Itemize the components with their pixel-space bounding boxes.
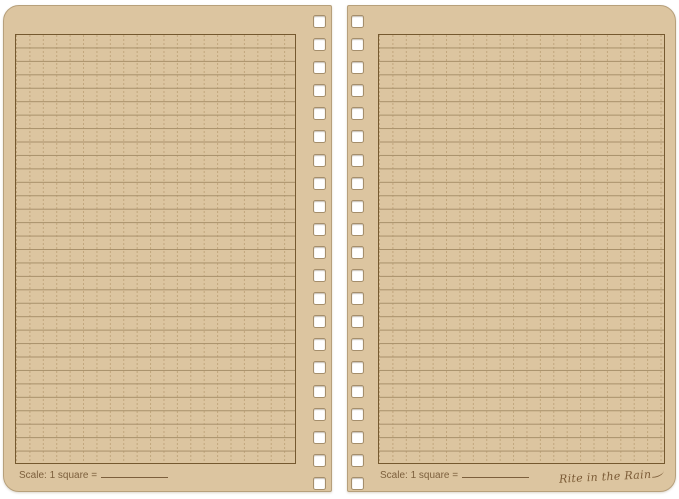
punch-hole bbox=[351, 454, 364, 467]
punch-hole bbox=[351, 177, 364, 190]
brand-signature: Rite in the Rain bbox=[558, 467, 664, 485]
punch-hole bbox=[351, 246, 364, 259]
punch-hole bbox=[351, 15, 364, 28]
scale-row-right: Scale: 1 square = bbox=[380, 468, 529, 482]
punch-hole bbox=[313, 385, 326, 398]
punch-hole bbox=[313, 154, 326, 167]
punch-hole bbox=[351, 361, 364, 374]
punch-hole bbox=[313, 361, 326, 374]
punch-hole bbox=[313, 315, 326, 328]
punch-hole bbox=[313, 223, 326, 236]
punch-hole bbox=[313, 431, 326, 444]
punch-hole bbox=[313, 200, 326, 213]
punch-hole bbox=[313, 269, 326, 282]
punch-hole bbox=[351, 38, 364, 51]
scale-label-left: Scale: 1 square = bbox=[19, 470, 97, 481]
punch-hole bbox=[351, 477, 364, 490]
spiral-holes-right bbox=[351, 15, 364, 490]
punch-hole bbox=[313, 408, 326, 421]
punch-hole bbox=[313, 107, 326, 120]
punch-hole bbox=[313, 454, 326, 467]
ruled-grid-right bbox=[378, 34, 665, 464]
punch-hole bbox=[313, 84, 326, 97]
scale-row-left: Scale: 1 square = bbox=[19, 468, 168, 482]
punch-hole bbox=[351, 107, 364, 120]
spiral-holes-left bbox=[313, 15, 326, 490]
scale-label-right: Scale: 1 square = bbox=[380, 470, 458, 481]
punch-hole bbox=[351, 431, 364, 444]
scale-fill-in-line-left bbox=[101, 468, 168, 478]
punch-hole bbox=[313, 38, 326, 51]
punch-hole bbox=[313, 61, 326, 74]
signature-swash bbox=[652, 470, 664, 478]
punch-hole bbox=[351, 269, 364, 282]
punch-hole bbox=[313, 177, 326, 190]
scale-fill-in-line-right bbox=[462, 468, 529, 478]
punch-hole bbox=[313, 292, 326, 305]
punch-hole bbox=[351, 223, 364, 236]
punch-hole bbox=[351, 408, 364, 421]
punch-hole bbox=[351, 84, 364, 97]
brand-signature-text: Rite in the Rain bbox=[558, 468, 651, 486]
punch-hole bbox=[313, 477, 326, 490]
punch-hole bbox=[351, 130, 364, 143]
punch-hole bbox=[313, 15, 326, 28]
punch-hole bbox=[351, 385, 364, 398]
punch-hole bbox=[351, 154, 364, 167]
punch-hole bbox=[351, 61, 364, 74]
punch-hole bbox=[351, 292, 364, 305]
punch-hole bbox=[313, 338, 326, 351]
ruled-grid-left bbox=[15, 34, 296, 464]
notebook-page-right: Scale: 1 square = Rite in the Rain bbox=[347, 5, 676, 492]
notebook-spread: Scale: 1 square = Scale: 1 square = Rite… bbox=[0, 0, 679, 499]
punch-hole bbox=[351, 338, 364, 351]
notebook-page-left: Scale: 1 square = bbox=[3, 5, 332, 492]
punch-hole bbox=[313, 130, 326, 143]
punch-hole bbox=[351, 200, 364, 213]
punch-hole bbox=[351, 315, 364, 328]
punch-hole bbox=[313, 246, 326, 259]
